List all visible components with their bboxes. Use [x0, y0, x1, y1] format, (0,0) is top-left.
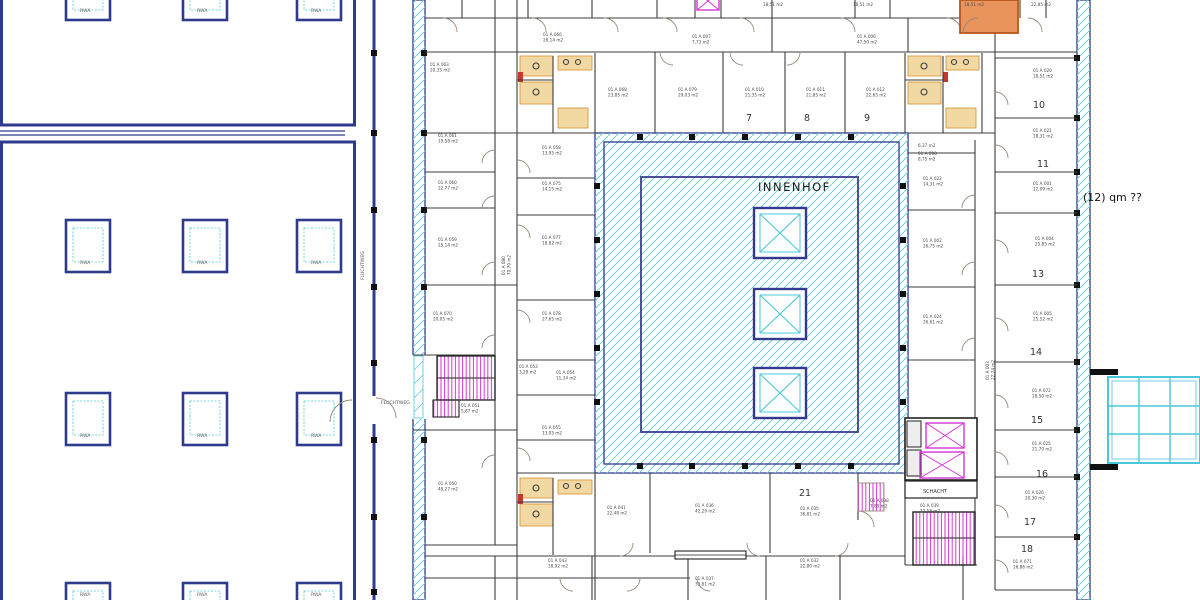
- rwa-label: RWA: [197, 8, 208, 14]
- room-code: 01 A 063: [430, 62, 449, 67]
- room-label: 01 A 06119,58 m2: [438, 133, 458, 144]
- toilet-block-bottom-left: [517, 478, 592, 555]
- room-code: 01 A 071: [1013, 559, 1032, 564]
- rwa-label: RWA: [80, 433, 91, 439]
- room-label: 01 A 02426,61 m2: [923, 314, 943, 325]
- room-number: 15: [1031, 415, 1043, 426]
- room-code: 01 A 026: [1025, 490, 1044, 495]
- room-code: 01 A 066: [543, 32, 562, 37]
- rwa-box: RWA: [183, 0, 227, 20]
- connector-stub: [1090, 369, 1118, 375]
- room-code: 01 A 054: [556, 370, 575, 375]
- room-area: 3,29 m2: [519, 370, 537, 375]
- rwa-box: RWA: [66, 220, 110, 272]
- room-area: 22,80 m2: [800, 564, 820, 569]
- room-area: 21,70 m2: [1032, 447, 1052, 452]
- room-code: 01 A 010: [745, 87, 764, 92]
- room-area: 36,81 m2: [800, 512, 820, 517]
- room-label: 01 A 07929,03 m2: [678, 87, 698, 98]
- hall-divider-lines: [0, 131, 345, 135]
- corridor-label: 01 A 08070,70 m2: [501, 255, 512, 275]
- rwa-box: RWA: [297, 393, 341, 445]
- room-area: 48,27 m2: [438, 487, 458, 492]
- room-label: 01 A 0088,75 m2: [918, 151, 937, 162]
- room-code: 01 A 070: [433, 311, 452, 316]
- room-label: 01 A 05813,95 m2: [542, 145, 562, 156]
- room-area: 22,77 m2: [438, 186, 458, 191]
- room-label: 01 A 02214,31 m2: [923, 176, 943, 187]
- corridor-door-gap: [370, 396, 379, 424]
- room-area: 20,30 m2: [1025, 496, 1045, 501]
- room-area: 42,29 m2: [695, 509, 715, 514]
- room-area: 20,05 m2: [433, 317, 453, 322]
- room-label: 01 A 03922,58 m2: [920, 503, 940, 514]
- room-area: 22,58 m2: [920, 509, 940, 514]
- room-code: 01 A 004: [1035, 236, 1054, 241]
- rwa-box: RWA: [297, 220, 341, 272]
- rwa-box: RWA: [66, 583, 110, 600]
- room-number: 16: [1036, 469, 1048, 480]
- room-area: 13,05 m2: [542, 431, 562, 436]
- room-area: 26,75 m2: [923, 244, 943, 249]
- rwa-label: RWA: [311, 260, 322, 266]
- room-code: 01 A 002: [923, 238, 942, 243]
- room-area: 8,75 m2: [918, 157, 936, 162]
- room-code: 01 A 077: [542, 235, 561, 240]
- schacht-label: SCHACHT: [923, 489, 948, 495]
- room-code: 01 A 035: [800, 506, 819, 511]
- escape-corridor: FLUCHTWEG FLUCHTWEG: [330, 0, 410, 600]
- rwa-label: RWA: [311, 8, 322, 14]
- room-area: 70,70 m2: [507, 255, 512, 275]
- room-number: 14: [1030, 347, 1042, 358]
- room-number: 7: [746, 113, 752, 124]
- room-code: 01 A 020: [1033, 68, 1052, 73]
- room-label: 01 A 01021,35 m2: [745, 87, 765, 98]
- corridor-vertical-label: FLUCHTWEG: [360, 251, 366, 280]
- room-label: 01 A 01222,65 m2: [866, 87, 886, 98]
- room-area: 18,51 m2: [1033, 74, 1053, 79]
- room-area: 11,34 m2: [556, 376, 576, 381]
- room-code: 01 A 061: [438, 133, 457, 138]
- room-area: 22,48 m2: [607, 511, 627, 516]
- room-code: 01 A 080: [501, 256, 506, 275]
- room-code: 01 A 003: [985, 361, 990, 380]
- room-label: 01 A 00112,09 m2: [1033, 181, 1053, 192]
- room-code: 01 A 032: [800, 558, 819, 563]
- room-label: 01 A 03642,29 m2: [695, 503, 715, 514]
- hall-lower: [2, 142, 355, 600]
- room-label: 01 A 07514,15 m2: [542, 181, 562, 192]
- room-label: 01 A 05513,05 m2: [542, 425, 562, 436]
- qm-annotation: (12) qm ??: [1083, 191, 1142, 204]
- room-code: 01 A 050: [438, 481, 457, 486]
- rwa-label: RWA: [80, 592, 91, 598]
- partial-area-label: 6,37 m2: [918, 143, 936, 148]
- room-code: 01 A 078: [542, 311, 561, 316]
- rwa-box: RWA: [66, 0, 110, 20]
- room-number: 11: [1037, 159, 1049, 170]
- room-label: 01 A 02620,30 m2: [1025, 490, 1045, 501]
- room-label: 01 A 03733,61 m2: [695, 576, 715, 587]
- room-area: 18,50 m2: [1032, 394, 1052, 399]
- room-code: 01 A 068: [608, 87, 627, 92]
- room-code: 01 A 021: [1033, 128, 1052, 133]
- room-label: 01 A 01121,85 m2: [806, 87, 826, 98]
- room-label: 01 A 00425,85 m2: [1035, 236, 1055, 247]
- room-label: 01 A 07827,65 m2: [542, 311, 562, 322]
- room-code: 01 A 075: [542, 181, 561, 186]
- rwa-box: RWA: [183, 220, 227, 272]
- toilet-block-top-left: [517, 56, 592, 133]
- rwa-label: RWA: [80, 8, 91, 14]
- room-label: 01 A 00525,52 m2: [1033, 311, 1053, 322]
- rwa-label: RWA: [311, 433, 322, 439]
- room-label: 01 A 07116,86 m2: [1013, 559, 1033, 570]
- rwa-label: RWA: [197, 433, 208, 439]
- rwa-box: RWA: [297, 583, 341, 600]
- outer-wall-left-hatch: [413, 0, 425, 600]
- corridor-label: 01 A 00322,74 m2: [985, 360, 996, 380]
- courtyard-wall-hatch: [595, 133, 908, 473]
- room-label: 01 A 00226,75 m2: [923, 238, 943, 249]
- rwa-box: RWA: [183, 583, 227, 600]
- room-code: 01 A 041: [607, 505, 626, 510]
- room-area: 21,35 m2: [745, 93, 765, 98]
- courtyard: INNENHOF: [594, 133, 908, 473]
- partial-area-label: 18,51 m2: [853, 2, 873, 7]
- room-label: 01 A 06022,77 m2: [438, 180, 458, 191]
- room-area: 12,09 m2: [1033, 187, 1053, 192]
- room-code: 01 A 072: [1032, 388, 1051, 393]
- room-code: 01 A 058: [542, 145, 561, 150]
- rwa-box: RWA: [183, 393, 227, 445]
- room-area: 18,31 m2: [1033, 134, 1053, 139]
- room-code: 01 A 043: [548, 558, 567, 563]
- room-area: 19,58 m2: [438, 139, 458, 144]
- room-code: 01 A 024: [923, 314, 942, 319]
- room-code: 01 A 079: [678, 87, 697, 92]
- floorplan-drawing: RWA RWA RWA RWA RWA RWA RWA RWA RWA RWA …: [0, 0, 1200, 600]
- left-halls: [0, 0, 355, 600]
- room-area: 27,65 m2: [542, 317, 562, 322]
- room-area: 7,80 m2: [870, 504, 888, 509]
- room-label: 01 A 07020,05 m2: [433, 311, 453, 322]
- room-area: 16,86 m2: [1013, 565, 1033, 570]
- room-label: 01 A 06823,85 m2: [608, 87, 628, 98]
- room-number: 17: [1024, 517, 1036, 528]
- room-area: 21,85 m2: [806, 93, 826, 98]
- room-area: 29,03 m2: [678, 93, 698, 98]
- room-label: 01 A 07718,82 m2: [542, 235, 562, 246]
- room-number: 9: [864, 113, 870, 124]
- room-code: 01 A 007: [692, 34, 711, 39]
- partial-area-label: 18,51 m2: [964, 2, 984, 7]
- room-number: 18: [1021, 544, 1033, 555]
- room-number: 10: [1033, 100, 1045, 111]
- room-area: 25,14 m2: [438, 243, 458, 248]
- rwa-label: RWA: [80, 260, 91, 266]
- room-code: 01 A 060: [438, 180, 457, 185]
- room-code: 01 A 038: [870, 498, 889, 503]
- room-label: 01 A 03536,81 m2: [800, 506, 820, 517]
- room-label: 01 A 06320,35 m2: [430, 62, 450, 73]
- room-area: 18,92 m2: [548, 564, 568, 569]
- room-area: 33,61 m2: [695, 582, 715, 587]
- room-area: 25,52 m2: [1033, 317, 1053, 322]
- room-label: 01 A 00647,50 m2: [857, 34, 877, 45]
- room-area: 26,61 m2: [923, 320, 943, 325]
- room-area: 23,85 m2: [608, 93, 628, 98]
- rwa-label: RWA: [197, 260, 208, 266]
- connector-stub: [1090, 464, 1118, 470]
- room-area: 18,82 m2: [542, 241, 562, 246]
- rwa-skylights: RWA RWA RWA RWA RWA RWA RWA RWA RWA RWA …: [66, 0, 341, 600]
- room-area: 14,15 m2: [542, 187, 562, 192]
- room-label: 01 A 02118,31 m2: [1033, 128, 1053, 139]
- room-code: 01 A 053: [519, 364, 538, 369]
- room-label: 01 A 04122,48 m2: [607, 505, 627, 516]
- room-area: 22,74 m2: [991, 360, 996, 380]
- room-code: 01 A 036: [695, 503, 714, 508]
- rwa-box: RWA: [66, 393, 110, 445]
- room-code: 01 A 012: [866, 87, 885, 92]
- room-label: 01 A 02521,70 m2: [1032, 441, 1052, 452]
- room-code: 01 A 051: [461, 403, 480, 408]
- outer-wall-right-hatch: [1077, 0, 1090, 600]
- room-code: 01 A 039: [920, 503, 939, 508]
- room-label: 01 A 04318,92 m2: [548, 558, 568, 569]
- room-area: 22,65 m2: [866, 93, 886, 98]
- room-code: 01 A 011: [806, 87, 825, 92]
- room-area: 7,73 m2: [692, 40, 710, 45]
- room-number: 8: [804, 113, 810, 124]
- room-area: 5,87 m2: [461, 409, 479, 414]
- room-area: 25,85 m2: [1035, 242, 1055, 247]
- room-label: 01 A 05411,34 m2: [556, 370, 576, 381]
- skylight-boxes: [754, 208, 806, 418]
- room-label: 01 A 0533,29 m2: [519, 364, 538, 375]
- room-label: 01 A 0387,80 m2: [870, 498, 889, 509]
- room-number: 13: [1032, 269, 1044, 280]
- room-code: 01 A 055: [542, 425, 561, 430]
- rwa-label: RWA: [197, 592, 208, 598]
- room-label: 01 A 03222,80 m2: [800, 558, 820, 569]
- room-code: 01 A 001: [1033, 181, 1052, 186]
- room-label: 01 A 0515,87 m2: [461, 403, 480, 414]
- partial-area-label: 22,85 m2: [1031, 2, 1051, 7]
- room-code: 01 A 025: [1032, 441, 1051, 446]
- partial-area-label: 18,51 m2: [763, 2, 783, 7]
- rwa-label: RWA: [311, 592, 322, 598]
- room-code: 01 A 005: [1033, 311, 1052, 316]
- room-area: 26,14 m2: [543, 38, 563, 43]
- room-number: 21: [799, 488, 811, 499]
- room-label: 01 A 05048,27 m2: [438, 481, 458, 492]
- room-code: 01 A 059: [438, 237, 457, 242]
- room-label: 01 A 05925,14 m2: [438, 237, 458, 248]
- room-area: 20,35 m2: [430, 68, 450, 73]
- room-code: 01 A 037: [695, 576, 714, 581]
- toilet-block-right: [905, 56, 979, 133]
- room-label: 01 A 02018,51 m2: [1033, 68, 1053, 79]
- rwa-box: RWA: [297, 0, 341, 20]
- exterior-stair-grid: [1090, 369, 1200, 470]
- top-elevator: [697, 0, 719, 10]
- room-code: 01 A 006: [857, 34, 876, 39]
- fluchtweg-label: FLUCHTWEG: [381, 400, 410, 406]
- room-code: 01 A 008: [918, 151, 937, 156]
- red-fixture: [943, 72, 948, 82]
- room-label: 01 A 0077,73 m2: [692, 34, 711, 45]
- room-label: 01 A 07218,50 m2: [1032, 388, 1052, 399]
- floorplan-canvas: RWA RWA RWA RWA RWA RWA RWA RWA RWA RWA …: [0, 0, 1200, 600]
- room-area: 14,31 m2: [923, 182, 943, 187]
- innenhof-label: INNENHOF: [758, 180, 831, 194]
- room-code: 01 A 022: [923, 176, 942, 181]
- room-label: 01 A 06626,14 m2: [543, 32, 563, 43]
- elevator-core: SCHACHT: [905, 418, 977, 565]
- room-area: 13,95 m2: [542, 151, 562, 156]
- room-area: 47,50 m2: [857, 40, 877, 45]
